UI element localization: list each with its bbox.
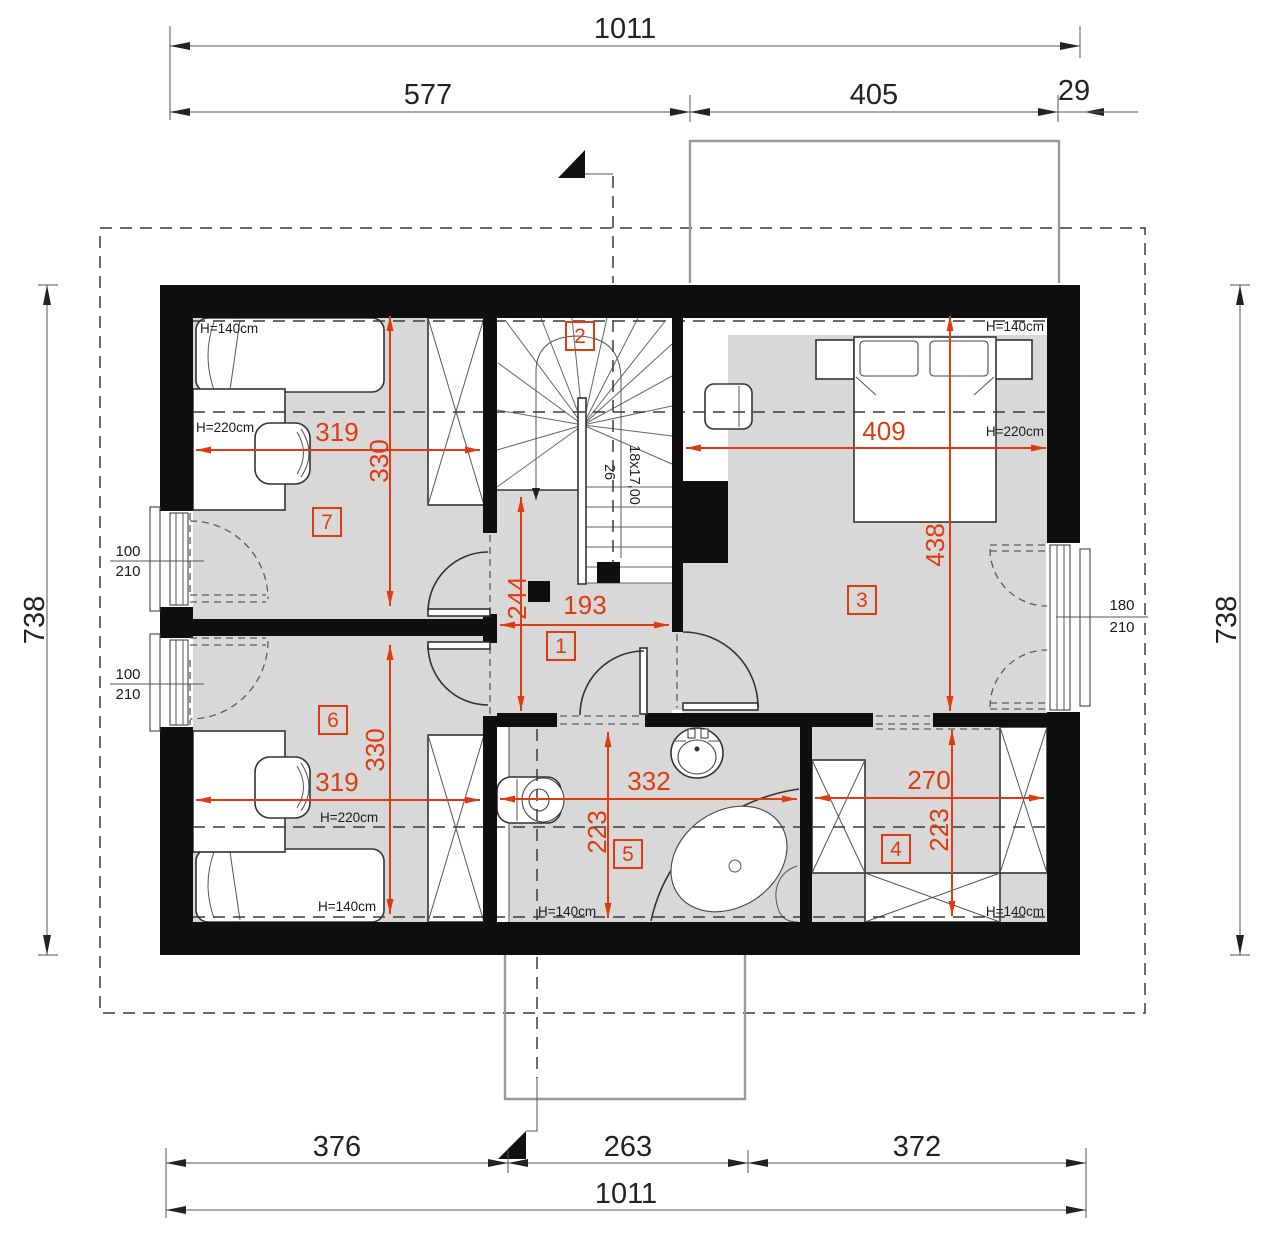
dim-right-side-label: 738	[1211, 596, 1243, 644]
balcony-door-sill	[1080, 549, 1090, 706]
stair-newel	[578, 398, 586, 584]
window2-frame	[170, 640, 188, 725]
window1-frame	[170, 513, 188, 605]
bathroom-door-leaf	[640, 648, 647, 714]
wall-bath-top-a	[497, 713, 557, 727]
dim-room5-width-label: 332	[627, 766, 670, 796]
dim-top-mid-label: 405	[850, 79, 898, 111]
stair-tread-note: 26	[601, 464, 617, 480]
wall-hall-left-c	[483, 716, 497, 922]
dim-top-left-label: 577	[404, 79, 452, 111]
wall-exterior-right-b	[1047, 710, 1080, 955]
h220-label-room6: H=220cm	[320, 810, 378, 825]
h220-label-room3: H=220cm	[986, 424, 1044, 439]
room3-room4-doorway-floor	[873, 713, 933, 727]
room-5-number: 5	[622, 843, 634, 866]
room6-door-leaf	[428, 642, 490, 649]
h140-label-bath: H=140cm	[538, 904, 596, 919]
room3-cabinet	[705, 384, 752, 429]
room3-door-leaf	[683, 703, 758, 710]
wall-exterior-bottom	[160, 922, 1080, 955]
window2-sill	[150, 634, 160, 731]
wall-bath-top-b	[645, 713, 800, 727]
room-6-number: 6	[327, 709, 339, 732]
room-3-number: 3	[856, 589, 868, 612]
wall-room4-top-a	[800, 713, 873, 727]
entrance-arrow-bottom	[498, 1131, 526, 1159]
wall-stub-b	[597, 562, 620, 583]
wall-bath-room4	[800, 713, 812, 922]
dim-room6-width-label: 319	[315, 767, 358, 797]
dim-top-right-label: 29	[1058, 75, 1090, 107]
stair-riser-note: 18x17,00	[626, 445, 642, 505]
bathroom-knee-strip	[497, 727, 509, 922]
room-4-number: 4	[890, 838, 902, 861]
dim-left-side-label: 738	[19, 596, 51, 644]
room-2-number: 2	[574, 325, 586, 348]
room-7-number: 7	[321, 511, 333, 534]
floor-plan-canvas: 319 330 319 330 409 438 270 223 332 223 …	[0, 0, 1280, 1241]
window2-width-label: 100	[115, 666, 140, 683]
room7-door-leaf	[428, 609, 490, 616]
h140-label-room7: H=140cm	[200, 321, 258, 336]
dim-room3-width-label: 409	[862, 416, 905, 446]
h140-label-room6: H=140cm	[318, 899, 376, 914]
balcony-door-height-label: 210	[1109, 619, 1134, 636]
bath-doorway-floor	[557, 713, 645, 727]
balcony-door-width-label: 180	[1109, 597, 1134, 614]
dim-hall-width-label: 193	[563, 590, 606, 620]
balcony-outline	[690, 141, 1059, 283]
wall-exterior-left-a	[160, 285, 193, 513]
room3-pillow-right	[930, 341, 988, 376]
balcony-door-frame	[1050, 545, 1070, 710]
h140-label-room4: H=140cm	[986, 904, 1044, 919]
wall-stair-room3	[672, 318, 683, 632]
wall-exterior-right-a	[1047, 285, 1080, 545]
room-1-number: 1	[555, 635, 567, 658]
entrance-arrow-top	[558, 150, 585, 178]
h220-label-room7: H=220cm	[196, 420, 254, 435]
room3-nightstand-right	[994, 340, 1032, 379]
wall-exterior-top	[160, 285, 1080, 318]
window1-width-label: 100	[115, 543, 140, 560]
window2-height-label: 210	[115, 686, 140, 703]
dim-bottom-total-label: 1011	[595, 1178, 657, 1210]
wall-room4-top-b	[933, 713, 1047, 727]
room6-chair	[255, 757, 310, 818]
dim-bottom-mid-label: 263	[604, 1131, 652, 1163]
dim-room7-height-label: 330	[364, 439, 394, 482]
dim-hall-height-label: 244	[502, 576, 532, 619]
floor-plan-page: 319 330 319 330 409 438 270 223 332 223 …	[0, 0, 1280, 1241]
h140-label-room3: H=140cm	[986, 319, 1044, 334]
wall-hall-left-a	[483, 318, 497, 533]
dim-room3-height-label: 438	[920, 523, 950, 566]
dim-room4-width-label: 270	[907, 765, 950, 795]
room3-pillow-left	[860, 341, 918, 376]
wall-exterior-left-c	[160, 725, 193, 955]
wall-room7-room6	[193, 619, 483, 636]
dim-room7-width-label: 319	[315, 417, 358, 447]
window1-height-label: 210	[115, 563, 140, 580]
dim-bottom-right-label: 372	[893, 1131, 941, 1163]
chimney	[683, 481, 728, 563]
room7-chair	[255, 423, 310, 484]
dim-top-total-label: 1011	[594, 13, 656, 45]
porch-outline	[505, 954, 745, 1099]
dim-room4-height-label: 223	[924, 808, 954, 851]
dim-bottom-left-label: 376	[313, 1131, 361, 1163]
room3-nightstand-left	[816, 340, 854, 379]
dim-room5-height-label: 223	[582, 810, 612, 853]
wall-hall-left-b	[483, 614, 497, 643]
wall-exterior-left-b	[160, 605, 193, 640]
dim-room6-height-label: 330	[360, 728, 390, 771]
window1-sill	[150, 507, 160, 611]
